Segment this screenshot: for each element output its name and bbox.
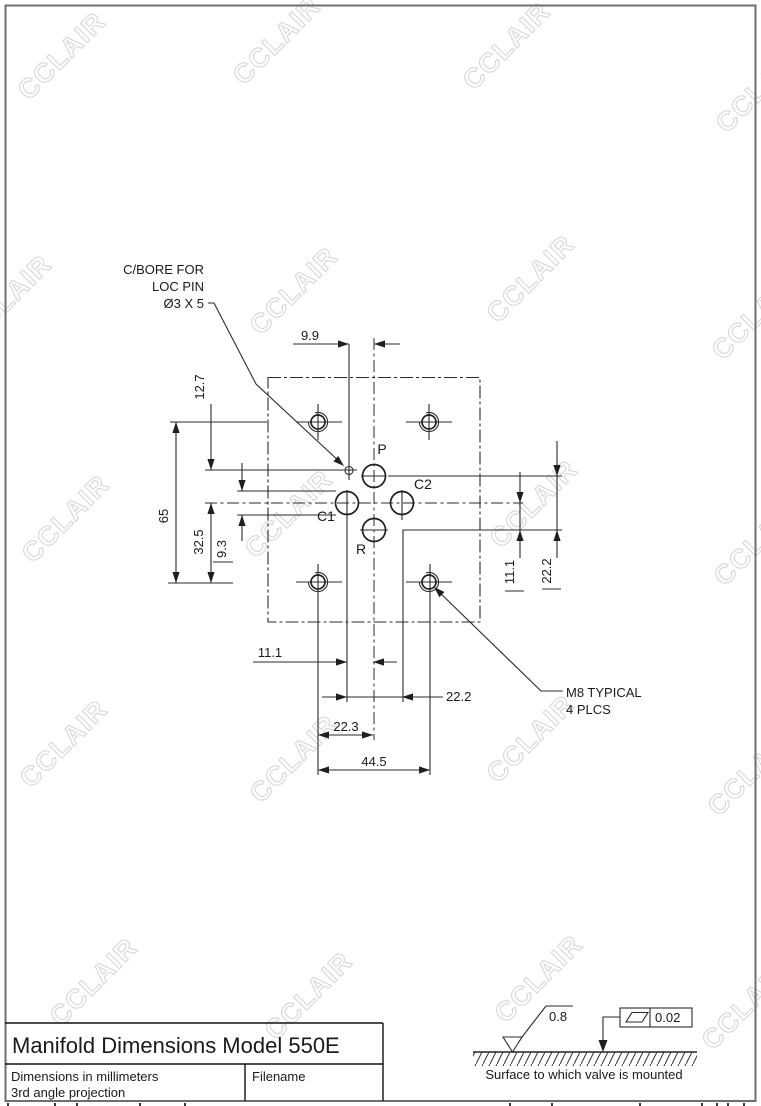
dim-9-3: 9.3 (214, 540, 229, 558)
watermark-text: CCLAIR (44, 932, 144, 1032)
dim-11-1-bottom: 11.1 (258, 645, 282, 660)
watermark-text: CCLAIR (484, 454, 584, 554)
flatness-value: 0.02 (655, 1010, 680, 1025)
watermark-text: CCLAIR (259, 946, 359, 1046)
units-note: Dimensions in millimeters (11, 1069, 159, 1084)
dim-32-5: 32.5 (191, 529, 206, 554)
port-c2-label: C2 (414, 476, 432, 492)
port-p-label: P (377, 441, 386, 457)
dim-65: 65 (156, 509, 171, 523)
cbore-callout-line1: C/BORE FOR (123, 262, 204, 277)
watermark-layer: CCLAIR CCLAIR CCLAIR CCLAIR CCLAIR CCLAI… (0, 0, 761, 1055)
m8-leader-line (437, 590, 563, 691)
watermark-text: CCLAIR (708, 492, 761, 592)
dim-12-7: 12.7 (192, 374, 207, 399)
watermark-text: CCLAIR (14, 694, 114, 794)
cbore-callout-line2: LOC PIN (152, 279, 204, 294)
filename-label: Filename (252, 1069, 305, 1084)
watermark-text: CCLAIR (16, 469, 116, 569)
flatness-icon (626, 1013, 648, 1023)
dim-9-9: 9.9 (301, 328, 319, 343)
m8-callout-line1: M8 TYPICAL (566, 685, 642, 700)
watermark-text: CCLAIR (0, 249, 57, 349)
dimension-arrows (172, 340, 560, 773)
watermark-text: CCLAIR (244, 241, 344, 341)
roughness-value: 0.8 (549, 1009, 567, 1024)
projection-note: 3rd angle projection (11, 1085, 125, 1100)
dim-44-5: 44.5 (361, 754, 386, 769)
watermark-text: CCLAIR (244, 709, 344, 809)
watermark-text: CCLAIR (710, 39, 761, 139)
watermark-text: CCLAIR (227, 0, 327, 90)
dim-11-1-right: 11.1 (502, 560, 517, 584)
watermark-text: CCLAIR (12, 6, 112, 106)
watermark-text: CCLAIR (702, 722, 761, 822)
port-r-label: R (356, 541, 366, 557)
m8-callout-line2: 4 PLCS (566, 702, 611, 717)
port-c1-label: C1 (317, 508, 335, 524)
drawing-svg: CCLAIR CCLAIR CCLAIR CCLAIR CCLAIR CCLAI… (0, 0, 761, 1106)
watermark-text: CCLAIR (457, 0, 557, 95)
surface-hatching (473, 1052, 697, 1066)
flatness-control-frame: 0.02 (599, 1008, 693, 1052)
title-block: Manifold Dimensions Model 550E Dimension… (5, 1023, 383, 1101)
drawing-title: Manifold Dimensions Model 550E (12, 1033, 340, 1058)
watermark-text: CCLAIR (489, 929, 589, 1029)
watermark-text: CCLAIR (481, 229, 581, 329)
watermark-text: CCLAIR (696, 956, 761, 1056)
dim-22-2-right: 22.2 (539, 558, 554, 583)
cbore-callout: C/BORE FOR LOC PIN Ø3 X 5 (123, 262, 346, 469)
flatness-leader-arrow (599, 1040, 608, 1052)
mounting-caption: Surface to which valve is mounted (485, 1067, 682, 1082)
watermark-text: CCLAIR (706, 266, 761, 366)
ports: P C1 C2 R (317, 441, 432, 557)
dim-22-2-bottom: 22.2 (446, 689, 471, 704)
cbore-callout-line3: Ø3 X 5 (164, 296, 204, 311)
dim-22-3: 22.3 (333, 719, 358, 734)
